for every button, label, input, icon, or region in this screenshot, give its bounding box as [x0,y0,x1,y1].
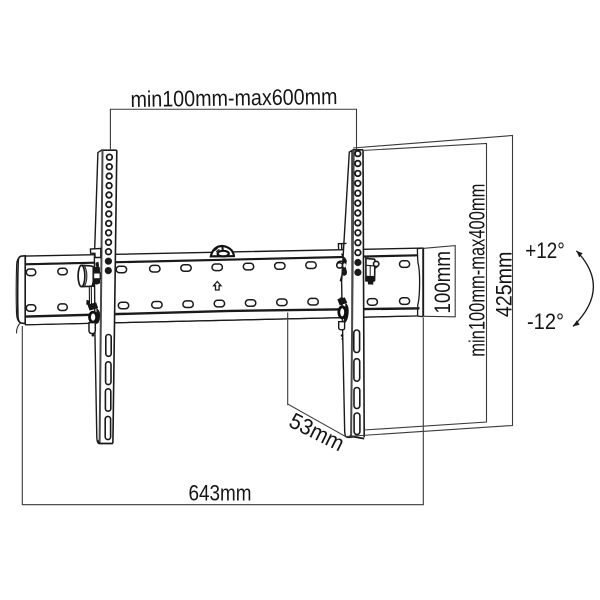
svg-text:643mm: 643mm [189,481,252,506]
svg-text:425mm: 425mm [491,252,516,318]
svg-text:min100mm-max600mm: min100mm-max600mm [130,84,337,112]
svg-text:100mm: 100mm [430,251,455,314]
svg-text:+12°: +12° [525,238,565,263]
svg-text:min100mm-max400mm: min100mm-max400mm [465,184,490,357]
svg-text:-12°: -12° [527,309,564,334]
